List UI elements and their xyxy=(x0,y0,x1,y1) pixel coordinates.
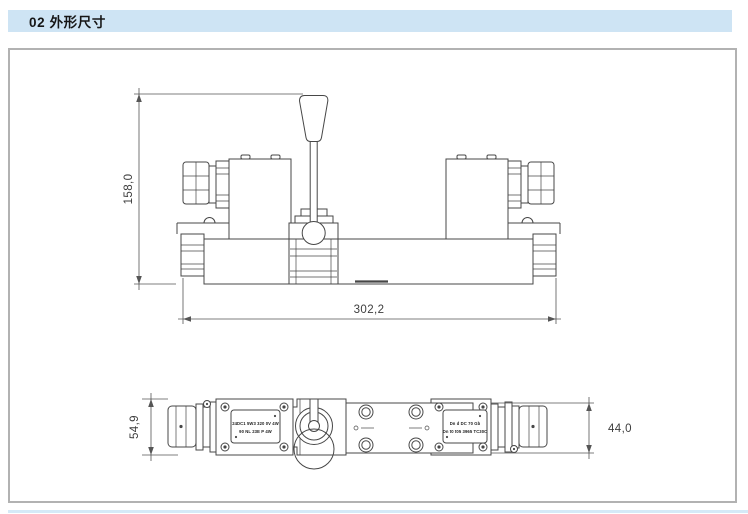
nameplate-left-line2: 90 NL 23E P 4W xyxy=(239,429,272,434)
dim-label-top-left-height: 54,9 xyxy=(129,415,141,439)
lever-knob xyxy=(300,96,328,142)
front-view: 158,0 302,2 xyxy=(123,88,561,324)
section-title: 02 外形尺寸 xyxy=(8,11,106,31)
top-view: 24DC1 5W3 320 0V 4W 90 NL 23E P 4W Dn d … xyxy=(129,393,632,469)
dim-label-top-right-height: 44,0 xyxy=(608,423,632,435)
nameplate-right-line1: Dn d DC 70 Gb xyxy=(450,421,481,426)
next-section-divider xyxy=(8,510,748,513)
nameplate-left-line1: 24DC1 5W3 320 0V 4W xyxy=(232,421,279,426)
dimension-width-302: 302,2 xyxy=(178,278,561,324)
dim-label-width: 302,2 xyxy=(354,304,385,316)
technical-drawing: 158,0 302,2 xyxy=(10,50,733,499)
nameplate-right-line2: Dn t0 t05 3965 TC30C xyxy=(443,429,488,434)
section-header: 02 外形尺寸 xyxy=(8,10,732,32)
dim-label-height: 158,0 xyxy=(123,174,135,205)
drawing-panel: 158,0 302,2 xyxy=(8,48,737,503)
